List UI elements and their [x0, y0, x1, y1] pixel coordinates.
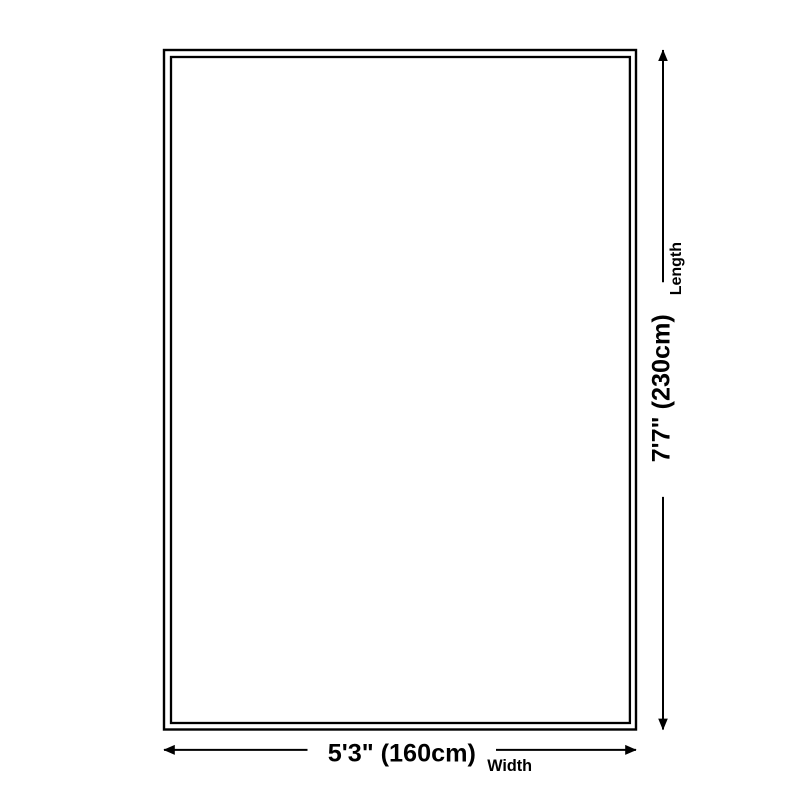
svg-text:7'7" (230cm): 7'7" (230cm) [647, 314, 675, 462]
svg-text:Width: Width [487, 757, 532, 775]
svg-text:Length: Length [668, 242, 685, 295]
svg-text:5'3" (160cm): 5'3" (160cm) [328, 739, 476, 767]
